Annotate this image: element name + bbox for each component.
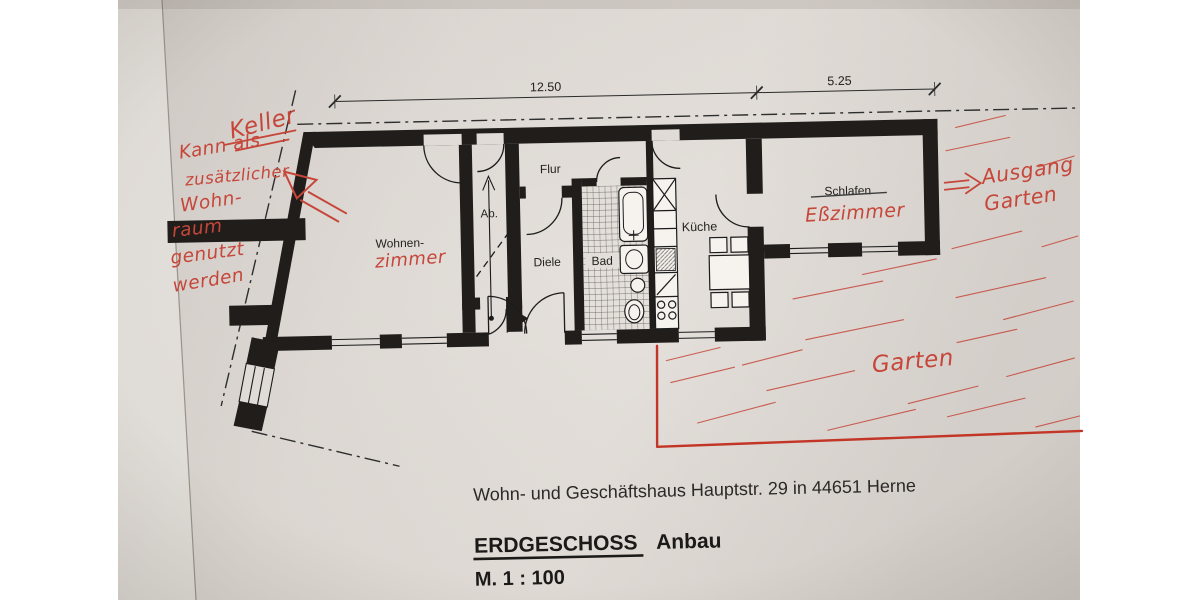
chair xyxy=(710,237,727,252)
floor-suffix: Anbau xyxy=(656,530,722,554)
floor-title: ERDGESCHOSS xyxy=(474,531,638,557)
chair xyxy=(731,237,748,252)
wall-bottom-seg xyxy=(447,332,489,347)
wall-bottom-seg xyxy=(380,334,402,348)
washbasin xyxy=(620,245,649,274)
dimension-label-annex: 5.25 xyxy=(827,74,852,89)
wall-bottom-seg xyxy=(617,328,679,343)
floor-plan-photo: 12.50 5.25 xyxy=(0,0,1200,600)
kitchen-appliance xyxy=(656,248,675,270)
wall-neighbor-lower xyxy=(229,305,273,326)
wall-bad-top xyxy=(581,178,596,186)
room-label-ab: Ab. xyxy=(480,208,498,220)
room-label-flur: Flur xyxy=(540,162,561,176)
floor-plan-canvas: 12.50 5.25 xyxy=(0,0,1200,600)
wall-annex-bottom xyxy=(764,244,790,259)
sink-small xyxy=(631,278,645,292)
door-opening xyxy=(424,134,462,146)
wall-kueche-annex xyxy=(746,139,763,194)
wall-annex-right xyxy=(922,119,940,255)
dimension-label-main: 12.50 xyxy=(530,80,562,95)
wall-bad-top xyxy=(620,177,646,186)
door-opening xyxy=(651,129,679,141)
room-label-diele: Diele xyxy=(533,255,561,270)
scale-label: M. 1 : 100 xyxy=(475,567,565,591)
dining-table xyxy=(709,255,750,290)
chair xyxy=(711,292,728,307)
wall-flur-diele xyxy=(520,187,526,199)
wall-annex-bottom xyxy=(828,243,862,258)
chair xyxy=(732,292,749,307)
wall-bottom-seg xyxy=(565,330,582,344)
wall-ab-bottom xyxy=(462,298,480,310)
door-opening xyxy=(477,133,504,145)
room-label-bad: Bad xyxy=(591,254,613,268)
wall-annex-bottom xyxy=(898,241,940,256)
room-label-kueche: Küche xyxy=(682,220,718,235)
